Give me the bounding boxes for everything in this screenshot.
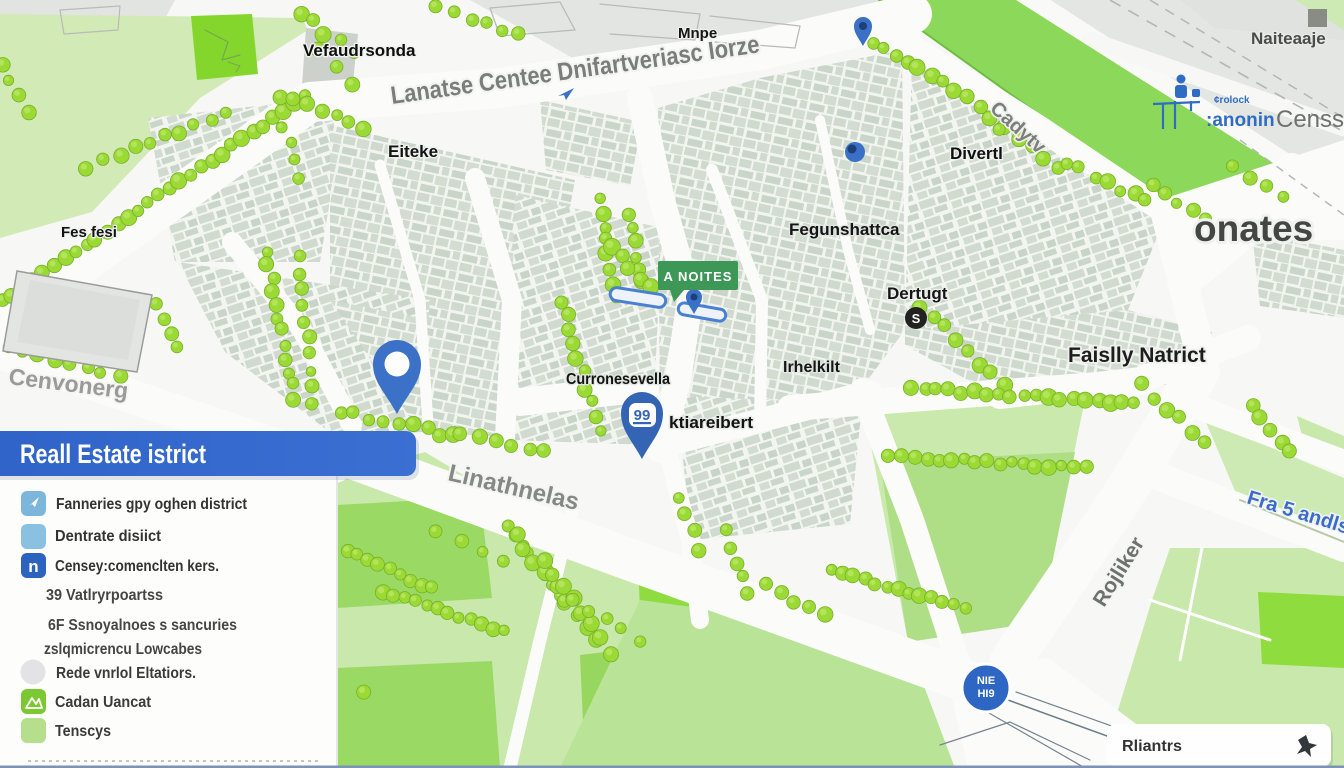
svg-text:Fegunshattca: Fegunshattca bbox=[789, 220, 900, 239]
svg-text:onates: onates bbox=[1194, 208, 1313, 249]
svg-text:Mnpe: Mnpe bbox=[678, 25, 717, 42]
svg-text:Rede vnrlol Eltatiors.: Rede vnrlol Eltatiors. bbox=[56, 665, 196, 682]
svg-text:Irhelkilt: Irhelkilt bbox=[783, 359, 841, 376]
svg-text::anonin: :anonin bbox=[1206, 110, 1275, 131]
svg-text:NIE: NIE bbox=[977, 675, 995, 687]
svg-text:Eiteke: Eiteke bbox=[388, 142, 438, 161]
svg-text:Censey:comenclten kers.: Censey:comenclten kers. bbox=[55, 558, 219, 575]
svg-text:Curronesevella: Curronesevella bbox=[566, 371, 670, 388]
svg-text:n: n bbox=[28, 557, 38, 576]
svg-text:Reall Estate istrict: Reall Estate istrict bbox=[20, 439, 206, 469]
svg-text:Divertl: Divertl bbox=[950, 144, 1003, 163]
svg-text:Fanneries gpy oghen district: Fanneries gpy oghen district bbox=[56, 496, 248, 513]
svg-text:S: S bbox=[912, 311, 921, 326]
svg-text:Rliantrs: Rliantrs bbox=[1122, 738, 1182, 755]
svg-text:39 Vatlryrpoartss: 39 Vatlryrpoartss bbox=[46, 587, 163, 604]
svg-text:Cadan Uancat: Cadan Uancat bbox=[55, 694, 152, 711]
svg-text:99: 99 bbox=[634, 407, 651, 424]
svg-text:Dertugt: Dertugt bbox=[887, 284, 948, 303]
svg-text:zslqmicrencu Lowcabes: zslqmicrencu Lowcabes bbox=[44, 641, 202, 658]
svg-text:Vefaudrsonda: Vefaudrsonda bbox=[303, 41, 416, 60]
svg-text:Fes fesi: Fes fesi bbox=[61, 224, 117, 241]
svg-text:HI9: HI9 bbox=[977, 688, 994, 700]
svg-text:Faislly Natrict: Faislly Natrict bbox=[1068, 344, 1206, 367]
svg-text:Tenscys: Tenscys bbox=[55, 723, 111, 740]
svg-text:Naiteaaje: Naiteaaje bbox=[1251, 29, 1326, 48]
svg-text:Censs: Censs bbox=[1276, 106, 1344, 133]
svg-text:ktiareibert: ktiareibert bbox=[669, 413, 753, 432]
svg-text:Dentrate disiict: Dentrate disiict bbox=[55, 528, 162, 545]
svg-text:A NOITES: A NOITES bbox=[664, 269, 733, 284]
svg-text:6F Ssnoyalnoes s sancuries: 6F Ssnoyalnoes s sancuries bbox=[48, 617, 237, 634]
svg-text:¢rolock: ¢rolock bbox=[1214, 95, 1250, 106]
